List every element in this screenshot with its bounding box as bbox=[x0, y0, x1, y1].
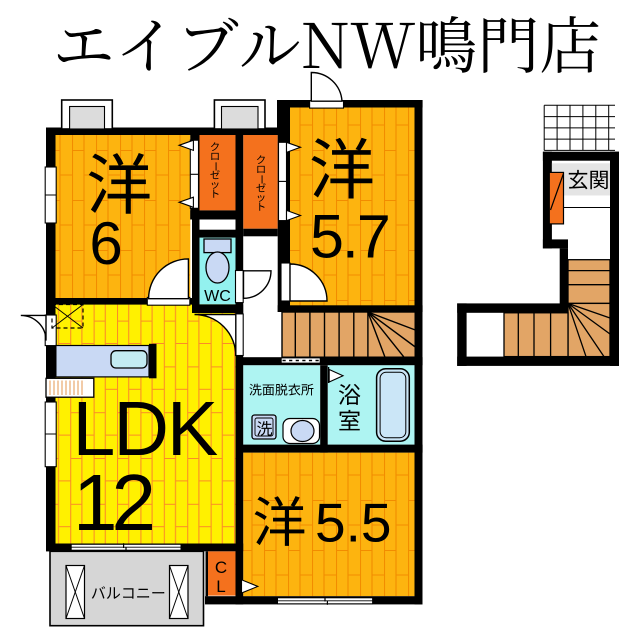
svg-text:C: C bbox=[215, 558, 227, 577]
svg-text:5.5: 5.5 bbox=[315, 492, 391, 554]
svg-text:12: 12 bbox=[73, 458, 152, 547]
svg-text:L: L bbox=[216, 577, 225, 596]
svg-text:5.7: 5.7 bbox=[310, 203, 389, 271]
svg-text:WC: WC bbox=[204, 288, 231, 305]
svg-text:6: 6 bbox=[89, 210, 122, 277]
